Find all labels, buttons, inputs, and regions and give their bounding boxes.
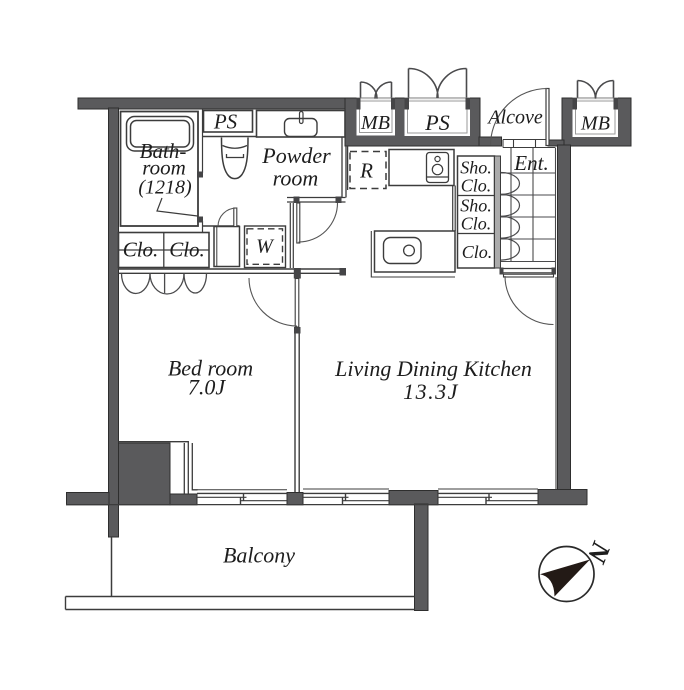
svg-text:Balcony: Balcony xyxy=(223,543,295,568)
svg-text:Clo.: Clo. xyxy=(169,238,205,262)
svg-text:PS: PS xyxy=(424,110,449,135)
svg-text:(1218): (1218) xyxy=(138,177,192,199)
svg-text:Living Dining Kitchen: Living Dining Kitchen xyxy=(334,356,532,381)
svg-text:Clo.: Clo. xyxy=(123,238,159,262)
svg-text:7.0J: 7.0J xyxy=(188,375,227,400)
svg-text:Ent.: Ent. xyxy=(513,151,548,175)
svg-text:room: room xyxy=(273,166,319,191)
svg-text:PS: PS xyxy=(213,110,238,134)
svg-text:Alcove: Alcove xyxy=(486,107,543,129)
svg-text:Sho.: Sho. xyxy=(460,196,492,216)
svg-text:Powder: Powder xyxy=(261,143,331,168)
svg-text:W: W xyxy=(256,236,275,258)
svg-text:Sho.: Sho. xyxy=(460,158,492,178)
svg-text:13.3J: 13.3J xyxy=(403,379,459,404)
svg-text:Clo.: Clo. xyxy=(462,242,493,262)
svg-text:MB: MB xyxy=(580,113,610,135)
svg-text:Clo.: Clo. xyxy=(461,214,492,234)
svg-text:Clo.: Clo. xyxy=(461,176,492,196)
svg-text:MB: MB xyxy=(360,112,390,134)
svg-text:R: R xyxy=(359,159,373,183)
